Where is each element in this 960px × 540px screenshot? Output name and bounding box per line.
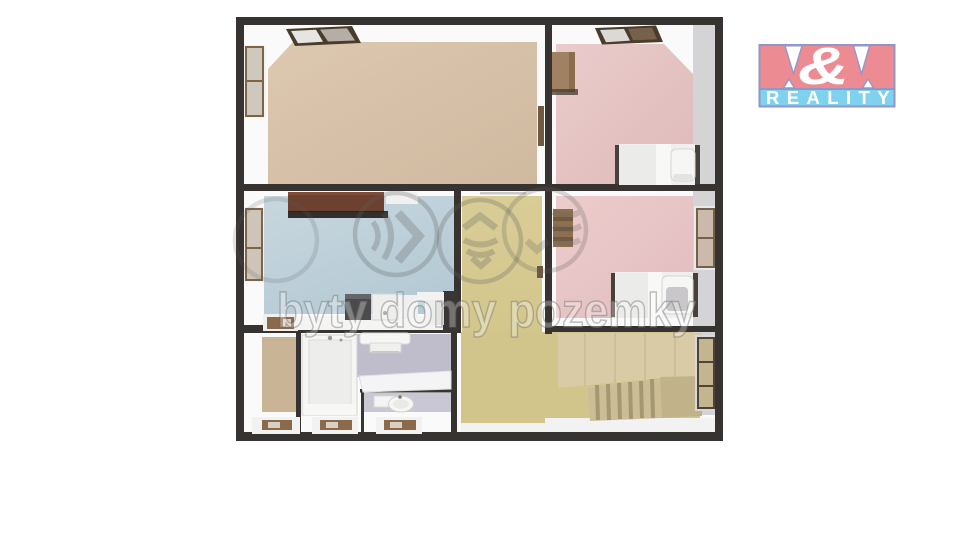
- svg-text:byty domy pozemky: byty domy pozemky: [277, 285, 696, 338]
- svg-text:REALITY: REALITY: [766, 87, 897, 108]
